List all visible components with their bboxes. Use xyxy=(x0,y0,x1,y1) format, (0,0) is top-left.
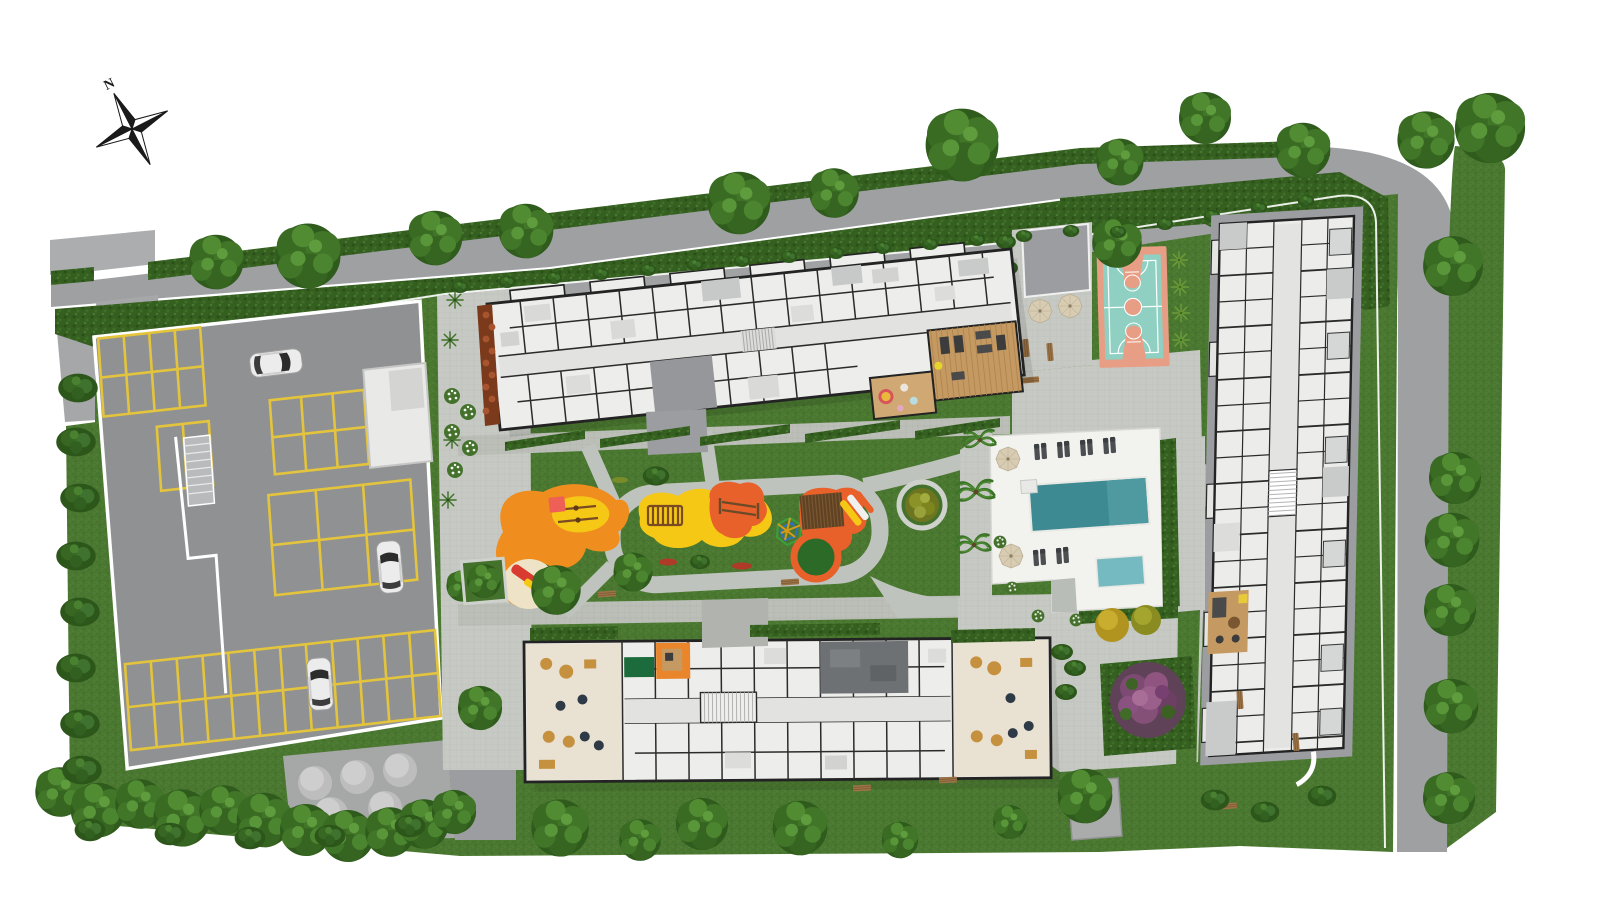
svg-text:N: N xyxy=(102,76,118,94)
